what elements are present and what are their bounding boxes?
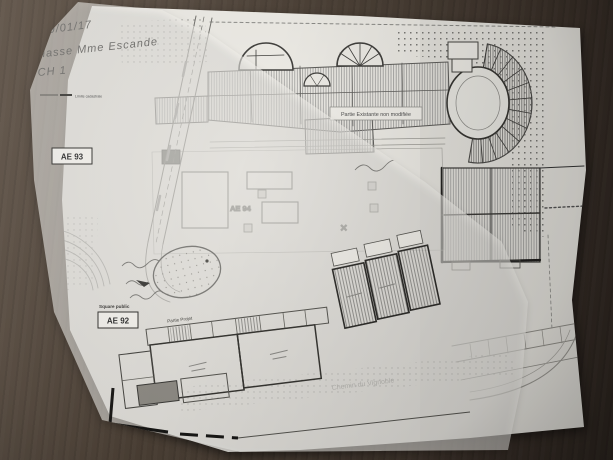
parcel-ae93-box: AE 93	[52, 148, 92, 164]
square-note-label: Square public	[99, 304, 130, 309]
handwritten-room-note: CH 1	[37, 65, 67, 79]
photo-of-site-plans: Partie Existante non modifiée	[0, 0, 613, 460]
parcel-ae93-label: AE 93	[61, 153, 84, 162]
parcel-ae92-label: AE 92	[107, 317, 130, 326]
legend-label: Limite cadastrale	[75, 95, 102, 99]
overlay-paper	[30, 2, 528, 452]
tracing-overlay-sheet: 19/01/17 Classe Mme Escande CH 1 Limite …	[0, 0, 613, 460]
